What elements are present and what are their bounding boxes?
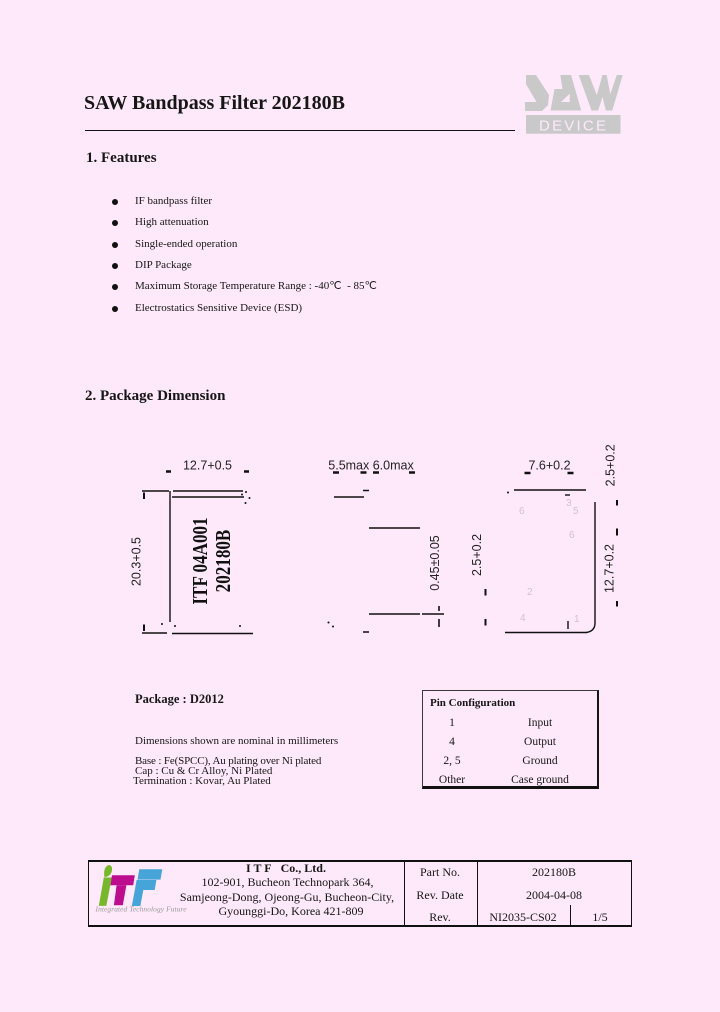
svg-text:12.7+0.5: 12.7+0.5: [183, 459, 232, 473]
svg-text:5: 5: [573, 506, 579, 517]
svg-text:1: 1: [574, 614, 580, 625]
svg-text:3: 3: [566, 498, 572, 509]
svg-text:ITF 04A001: ITF 04A001: [190, 517, 213, 604]
svg-text:7.6+0.2: 7.6+0.2: [528, 459, 570, 473]
svg-text:5.5max 6.0max: 5.5max 6.0max: [328, 459, 414, 473]
svg-text:4: 4: [520, 613, 526, 624]
svg-text:202180B: 202180B: [213, 529, 236, 592]
svg-text:2: 2: [527, 587, 533, 598]
svg-text:6: 6: [519, 506, 525, 517]
svg-text:Integrated Technology Future: Integrated Technology Future: [95, 904, 188, 913]
svg-text:2.5+0.2: 2.5+0.2: [470, 534, 484, 576]
svg-text:2.5+0.2: 2.5+0.2: [604, 444, 618, 486]
svg-text:6: 6: [569, 530, 575, 541]
svg-text:20.3+0.5: 20.3+0.5: [130, 537, 144, 586]
svg-text:0.45±0.05: 0.45±0.05: [428, 535, 442, 591]
svg-text:12.7+0.2: 12.7+0.2: [603, 544, 617, 593]
